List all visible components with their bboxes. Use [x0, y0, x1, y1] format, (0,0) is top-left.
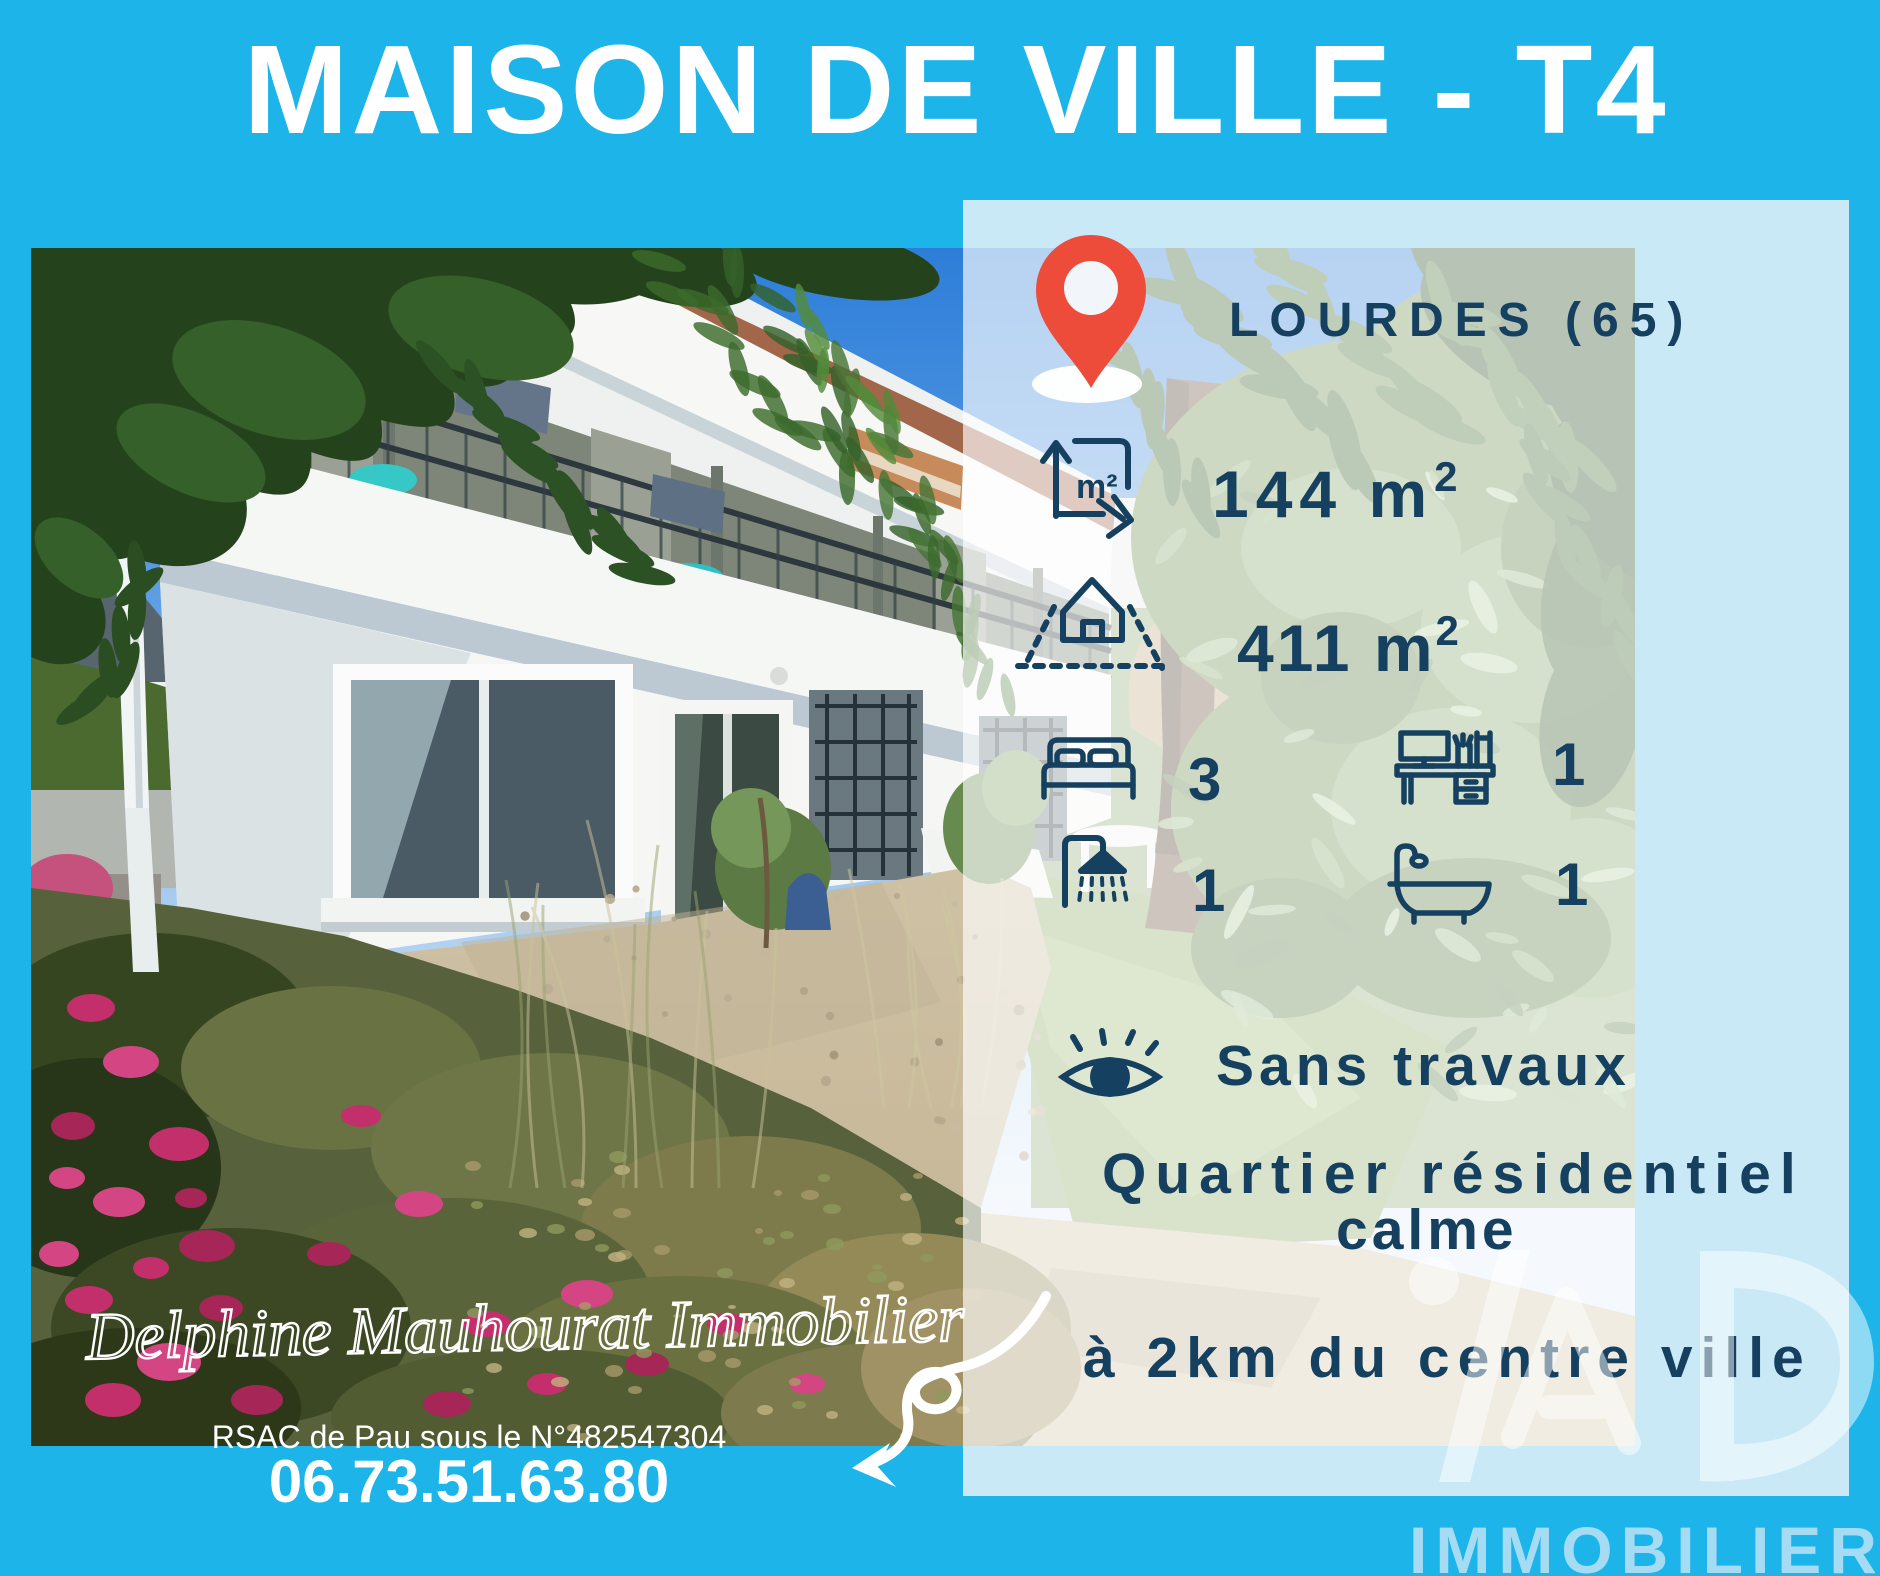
svg-text:IMMOBILIER: IMMOBILIER — [1409, 1513, 1880, 1576]
svg-text:m²: m² — [1076, 468, 1118, 506]
